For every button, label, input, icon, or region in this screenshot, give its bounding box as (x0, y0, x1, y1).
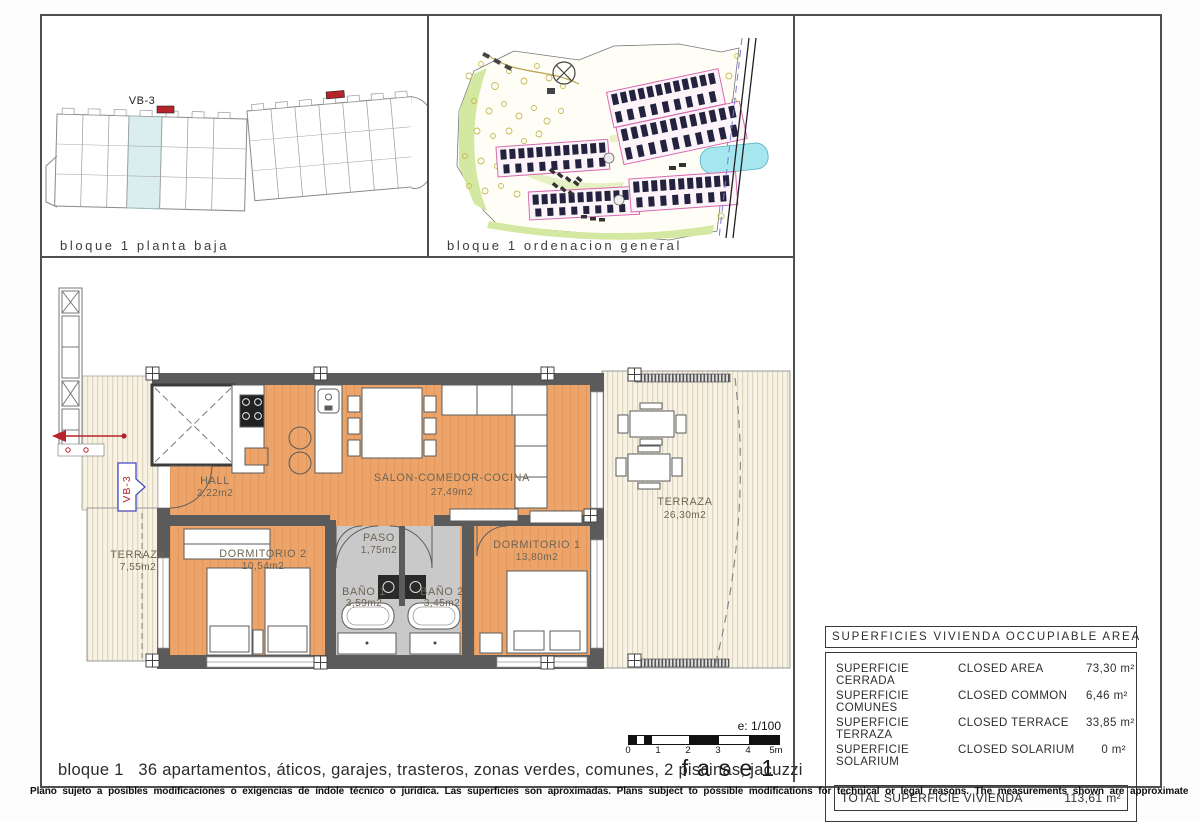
room-area-bano2: 3,45m2 (424, 598, 460, 609)
top-panels-row: VB-3 bloque 1 planta baja (42, 16, 793, 258)
red-core-marker (326, 90, 345, 99)
table-row: SUPERFICIE TERRAZA CLOSED TERRACE 33,85 … (834, 715, 1128, 742)
stair-gallery (59, 288, 82, 453)
row-value: 6,46 m² (1086, 690, 1128, 714)
room-label-bano2: BAÑO 2 (420, 585, 464, 598)
row-label-es: SUPERFICIE SOLARIUM (836, 744, 958, 768)
panel-planta-caption: bloque 1 planta baja (60, 238, 229, 253)
row-label-es: SUPERFICIE CERRADA (836, 663, 958, 687)
room-label-terraza-left: TERRAZA (110, 549, 165, 561)
room-label-terraza-right: TERRAZA (657, 496, 712, 508)
room-area-dormitorio1: 13,80m2 (516, 552, 558, 563)
row-label-en: CLOSED SOLARIUM (958, 744, 1086, 768)
row-value: 0 m² (1086, 744, 1126, 768)
row-label-es: SUPERFICIE TERRAZA (836, 717, 958, 741)
plan-caption: bloque 1 36 apartamentos, áticos, garaje… (58, 761, 803, 780)
floor-plan-drawing: VB-3 (42, 258, 793, 782)
drawing-sheet: VB-3 bloque 1 planta baja (40, 14, 1162, 788)
balustrade-bottom (632, 659, 729, 667)
row-label-en: CLOSED AREA (958, 663, 1086, 687)
room-area-hall: 2,22m2 (197, 488, 233, 499)
room-label-bano1: BAÑO 1 (342, 585, 386, 598)
building-row-e (629, 172, 738, 212)
row-label-es: SUPERFICIE COMUNES (836, 690, 958, 714)
roundabout (614, 195, 624, 205)
left-region: VB-3 bloque 1 planta baja (42, 16, 795, 782)
row-value: 73,30 m² (1086, 663, 1135, 687)
room-label-dormitorio1: DORMITORIO 1 (493, 539, 580, 551)
scale-label: e: 1/100 (620, 719, 785, 733)
planta-baja-drawing: VB-3 (42, 16, 427, 252)
room-area-terraza-right: 26,30m2 (664, 510, 706, 521)
table-row: SUPERFICIE CERRADA CLOSED AREA 73,30 m² (834, 661, 1128, 688)
balustrade-top (635, 374, 730, 382)
roundabout (604, 153, 614, 163)
red-core-marker (157, 106, 174, 113)
room-area-bano1: 3,59m2 (346, 598, 382, 609)
scale-bar-group: e: 1/100 0 1 2 3 4 5m (620, 719, 785, 756)
row-label-en: CLOSED TERRACE (958, 717, 1086, 741)
room-area-paso: 1,75m2 (361, 545, 397, 556)
plan-sheet-page: { "colors": { "floor_orange": "#eca46a",… (0, 0, 1200, 800)
ordenacion-drawing (429, 16, 793, 252)
panel-ordenacion-caption: bloque 1 ordenacion general (447, 238, 682, 253)
table-row: SUPERFICIE COMUNES CLOSED COMMON 6,46 m² (834, 688, 1128, 715)
room-area-terraza-left: 7,55m2 (120, 562, 156, 573)
panel-planta-baja: VB-3 bloque 1 planta baja (42, 16, 429, 256)
room-label-paso: PASO (363, 532, 395, 544)
areas-table-title: SUPERFICIES VIVIENDA OCCUPIABLE AREA (825, 626, 1137, 648)
row-label-en: CLOSED COMMON (958, 690, 1086, 714)
floor-plan-area: VB-3 (42, 258, 793, 782)
panel-ordenacion-general: bloque 1 ordenacion general (429, 16, 793, 256)
disclaimer-note: Plano sujeto a posibles modificaciones o… (30, 786, 1170, 797)
room-label-dormitorio2: DORMITORIO 2 (219, 548, 306, 560)
highlighted-unit (127, 116, 162, 209)
room-area-salon: 27,49m2 (431, 487, 473, 498)
room-label-hall: HALL (200, 475, 230, 487)
elevator (152, 385, 234, 465)
unit-callout-label: VB-3 (129, 95, 155, 107)
row-value: 33,85 m² (1086, 717, 1135, 741)
scale-bar (628, 735, 780, 745)
table-row: SUPERFICIE SOLARIUM CLOSED SOLARIUM 0 m² (834, 742, 1128, 769)
unit-tag-label: VB-3 (121, 475, 133, 502)
right-region: SUPERFICIES VIVIENDA OCCUPIABLE AREA SUP… (797, 16, 1160, 782)
tv-sideboard (450, 509, 582, 523)
room-label-salon: SALON-COMEDOR-COCINA (374, 472, 530, 484)
room-area-dormitorio2: 10,54m2 (242, 561, 284, 572)
